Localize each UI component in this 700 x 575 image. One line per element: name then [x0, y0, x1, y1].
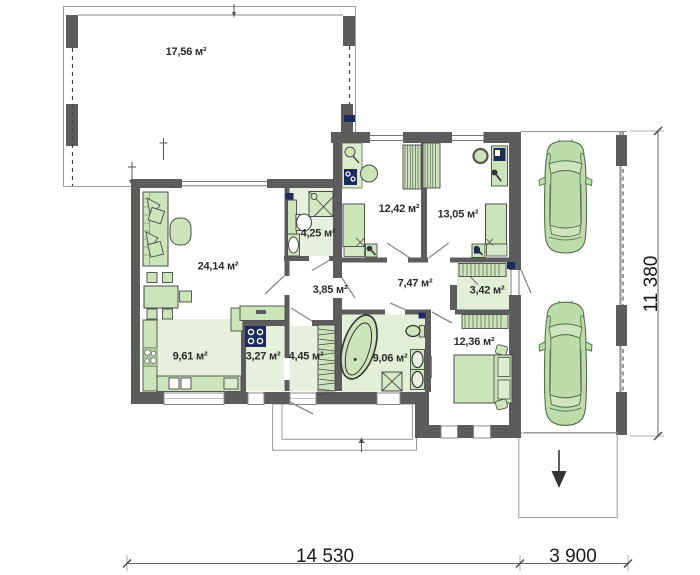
svg-text:4,45 м²: 4,45 м² — [289, 351, 324, 363]
svg-text:13,05 м²: 13,05 м² — [438, 209, 479, 221]
svg-text:9,06 м²: 9,06 м² — [373, 353, 408, 365]
svg-text:24,14 м²: 24,14 м² — [198, 261, 239, 273]
svg-text:4,25 м²: 4,25 м² — [301, 228, 336, 240]
svg-text:3 900: 3 900 — [549, 546, 597, 567]
svg-text:9,61 м²: 9,61 м² — [173, 351, 208, 363]
svg-text:14 530: 14 530 — [296, 546, 354, 567]
svg-text:17,56 м²: 17,56 м² — [166, 46, 207, 58]
svg-text:12,36 м²: 12,36 м² — [454, 336, 495, 348]
svg-text:3,42 м²: 3,42 м² — [470, 285, 505, 297]
svg-text:7,47 м²: 7,47 м² — [398, 278, 433, 290]
svg-text:3,27 м²: 3,27 м² — [246, 351, 281, 363]
svg-text:11 380: 11 380 — [641, 256, 662, 313]
svg-text:12,42 м²: 12,42 м² — [379, 203, 420, 215]
svg-text:3,85 м²: 3,85 м² — [313, 284, 348, 296]
